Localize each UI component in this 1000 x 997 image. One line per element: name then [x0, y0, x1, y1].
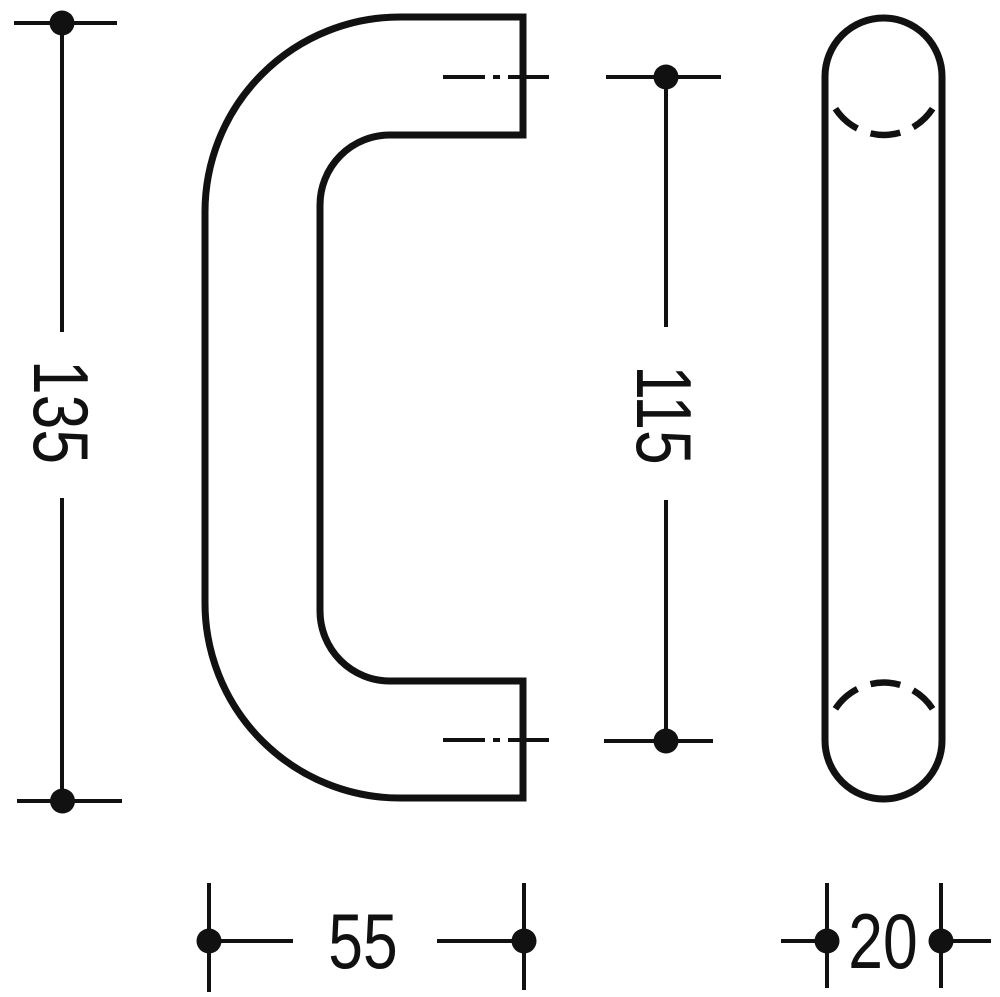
- inner-contour: [320, 135, 523, 681]
- dimension-centers-distance: 115: [604, 65, 721, 754]
- dimension-label-centers-distance: 115: [620, 365, 707, 464]
- dimension-tube-diameter: 20: [781, 883, 991, 988]
- hidden-arc-bottom: [835, 683, 932, 709]
- dimension-label-overall-height: 135: [17, 360, 104, 464]
- dimension-label-tube-diameter: 20: [848, 897, 917, 984]
- handle-front-view: [825, 18, 942, 799]
- dimension-overall-height: 135: [14, 11, 122, 814]
- hidden-arc-top: [835, 109, 932, 135]
- technical-drawing-canvas: 135 115 55: [0, 0, 1000, 997]
- dimension-projection-depth: 55: [197, 883, 537, 992]
- technical-drawing: 135 115 55: [0, 0, 1000, 997]
- dimension-label-projection-depth: 55: [328, 897, 397, 984]
- handle-side-view: [205, 14, 549, 802]
